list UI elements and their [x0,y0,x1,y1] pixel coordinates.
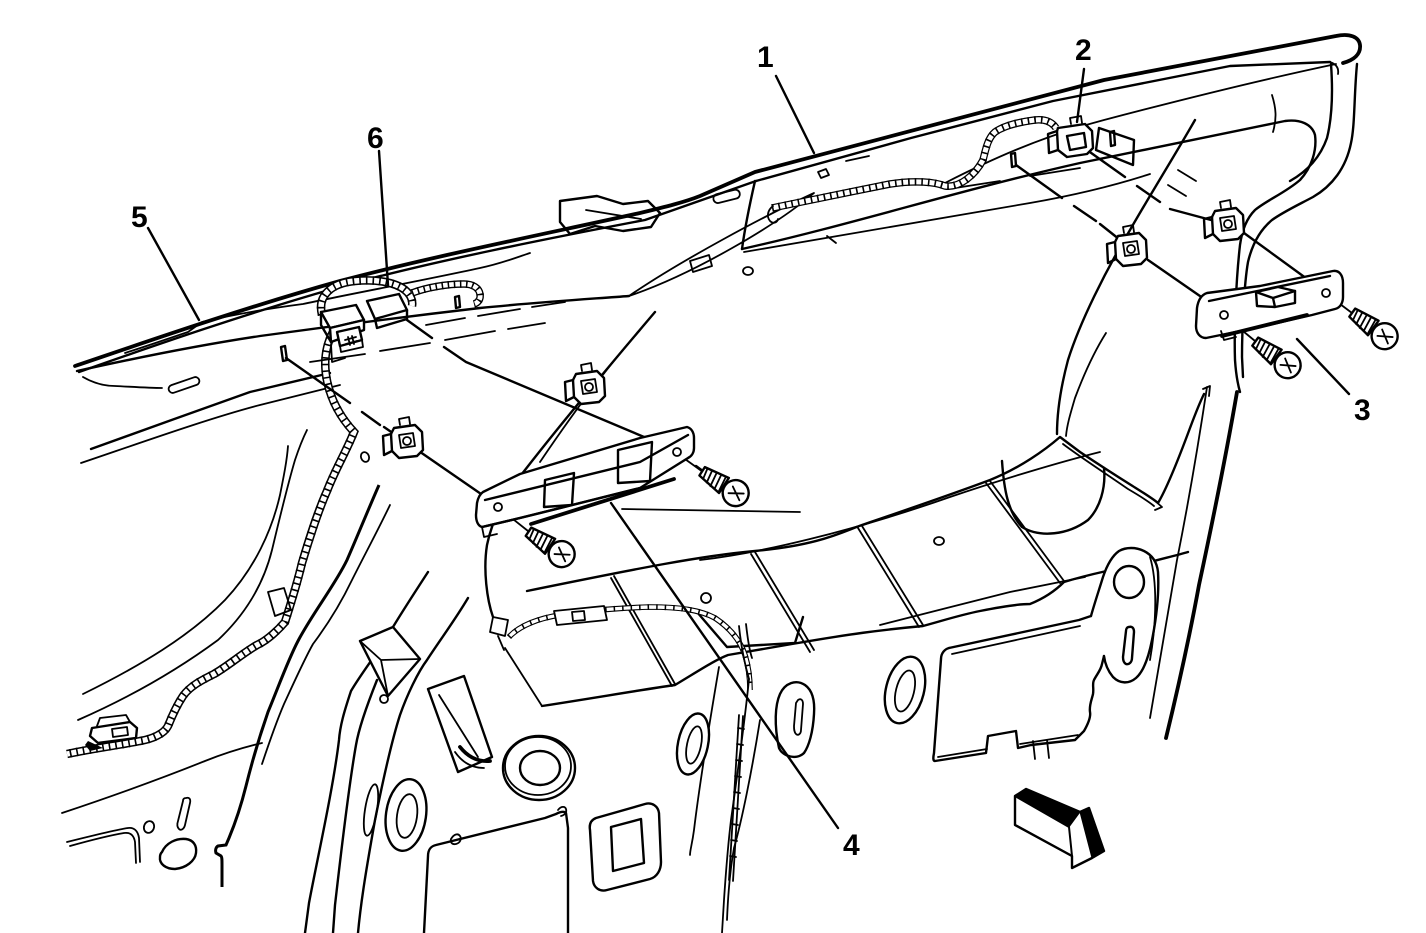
svg-text:6: 6 [367,122,384,155]
svg-text:1: 1 [757,41,774,74]
svg-text:3: 3 [1354,394,1371,427]
svg-text:2: 2 [1075,34,1092,67]
svg-text:5: 5 [131,201,148,234]
svg-text:4: 4 [843,829,860,862]
